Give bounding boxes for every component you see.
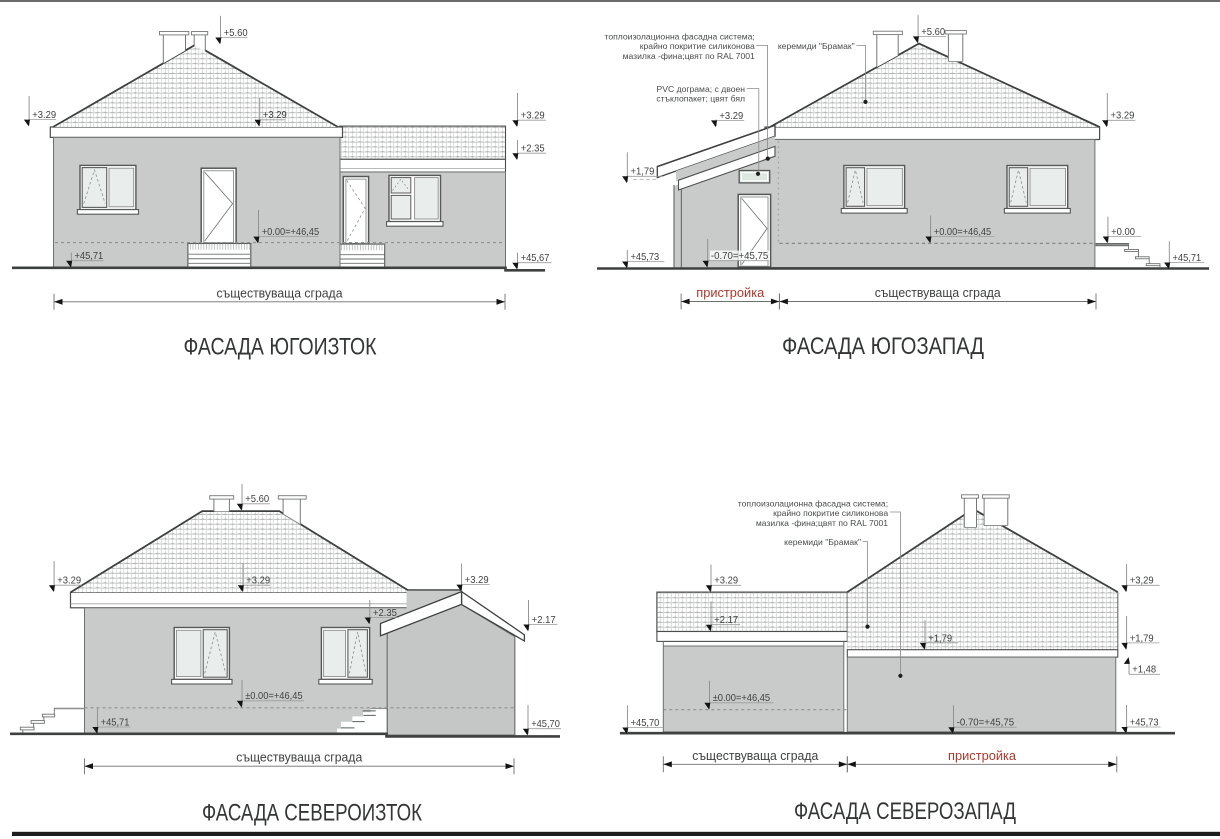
- svg-text:съществуваща сграда: съществуваща сграда: [217, 285, 344, 300]
- svg-text:±0.00=+46,45: ±0.00=+46,45: [713, 692, 771, 704]
- svg-text:ФАСАДА ЮГОИЗТОК: ФАСАДА ЮГОИЗТОК: [184, 334, 377, 361]
- svg-text:мазилка -фина;цвят по RAL 7001: мазилка -фина;цвят по RAL 7001: [756, 518, 888, 528]
- svg-text:±0.00=+46,45: ±0.00=+46,45: [245, 690, 303, 702]
- svg-text:-0.70=+45,75: -0.70=+45,75: [957, 717, 1015, 729]
- svg-text:+1,79: +1,79: [1130, 632, 1154, 644]
- svg-text:пристройка: пристройка: [696, 285, 765, 300]
- svg-text:крайно покритие силиконова: крайно покритие силиконова: [773, 508, 888, 518]
- svg-text:+3.29: +3.29: [714, 575, 738, 587]
- svg-text:+45,71: +45,71: [1173, 252, 1202, 264]
- svg-text:мазилка -фина;цвят по RAL 7001: мазилка -фина;цвят по RAL 7001: [623, 51, 755, 61]
- svg-text:стъклопакет; цвят бял: стъклопакет; цвят бял: [656, 94, 745, 104]
- svg-text:+5.60: +5.60: [245, 493, 269, 505]
- svg-text:+45,70: +45,70: [531, 718, 560, 730]
- svg-text:ФАСАДА СЕВЕРОЗАПАД: ФАСАДА СЕВЕРОЗАПАД: [794, 798, 1016, 825]
- svg-text:+45,67: +45,67: [521, 252, 550, 264]
- svg-text:съществуваща сграда: съществуваща сграда: [236, 750, 363, 765]
- svg-text:+3.29: +3.29: [465, 574, 489, 586]
- svg-text:ФАСАДА ЮГОЗАПАД: ФАСАДА ЮГОЗАПАД: [782, 333, 984, 360]
- svg-text:топлоизолационна фасадна систе: топлоизолационна фасадна система;: [605, 31, 755, 41]
- svg-text:+3.29: +3.29: [263, 109, 287, 121]
- svg-text:+0.00=+46,45: +0.00=+46,45: [262, 226, 320, 238]
- svg-text:топлоизолационна фасадна систе: топлоизолационна фасадна система;: [738, 498, 888, 508]
- svg-text:+0.00: +0.00: [1111, 226, 1135, 238]
- svg-text:+3.29: +3.29: [57, 575, 81, 587]
- svg-text:съществуваща сграда: съществуваща сграда: [692, 748, 819, 763]
- svg-text:PVC дограма; с двоен: PVC дограма; с двоен: [657, 84, 746, 94]
- svg-text:+0.00=+46,45: +0.00=+46,45: [934, 226, 992, 238]
- svg-text:+2.35: +2.35: [521, 143, 545, 155]
- svg-text:+1,79: +1,79: [928, 632, 952, 644]
- svg-text:+45,71: +45,71: [101, 716, 130, 728]
- svg-text:+45,73: +45,73: [1130, 716, 1159, 728]
- svg-text:+3,29: +3,29: [1130, 575, 1154, 587]
- svg-text:+2.17: +2.17: [714, 614, 738, 626]
- svg-text:керемиди "Брамак": керемиди "Брамак": [778, 41, 855, 51]
- svg-text:+5.60: +5.60: [921, 26, 945, 38]
- svg-text:+3.29: +3.29: [32, 109, 56, 121]
- svg-text:+3.29: +3.29: [521, 110, 545, 122]
- svg-text:+1,48: +1,48: [1132, 664, 1156, 676]
- svg-text:+3.29: +3.29: [719, 110, 743, 122]
- svg-text:пристройка: пристройка: [948, 748, 1017, 763]
- svg-text:съществуваща сграда: съществуваща сграда: [875, 285, 1002, 300]
- svg-text:+2.35: +2.35: [373, 607, 397, 619]
- svg-text:+1,79: +1,79: [631, 166, 655, 178]
- svg-text:-0.70=+45,75: -0.70=+45,75: [711, 250, 769, 262]
- svg-text:+5.60: +5.60: [224, 27, 248, 39]
- svg-text:+45,73: +45,73: [631, 251, 660, 263]
- svg-text:+45,71: +45,71: [75, 250, 104, 262]
- svg-text:+3.29: +3.29: [1111, 110, 1135, 122]
- svg-text:крайно покритие силиконова: крайно покритие силиконова: [640, 41, 755, 51]
- svg-text:+45,70: +45,70: [631, 717, 660, 729]
- svg-text:ФАСАДА СЕВЕРОИЗТОК: ФАСАДА СЕВЕРОИЗТОК: [202, 800, 422, 827]
- svg-text:+3.29: +3.29: [246, 575, 270, 587]
- svg-text:+2.17: +2.17: [532, 614, 556, 626]
- svg-text:керемиди "Брамак": керемиди "Брамак": [784, 537, 861, 547]
